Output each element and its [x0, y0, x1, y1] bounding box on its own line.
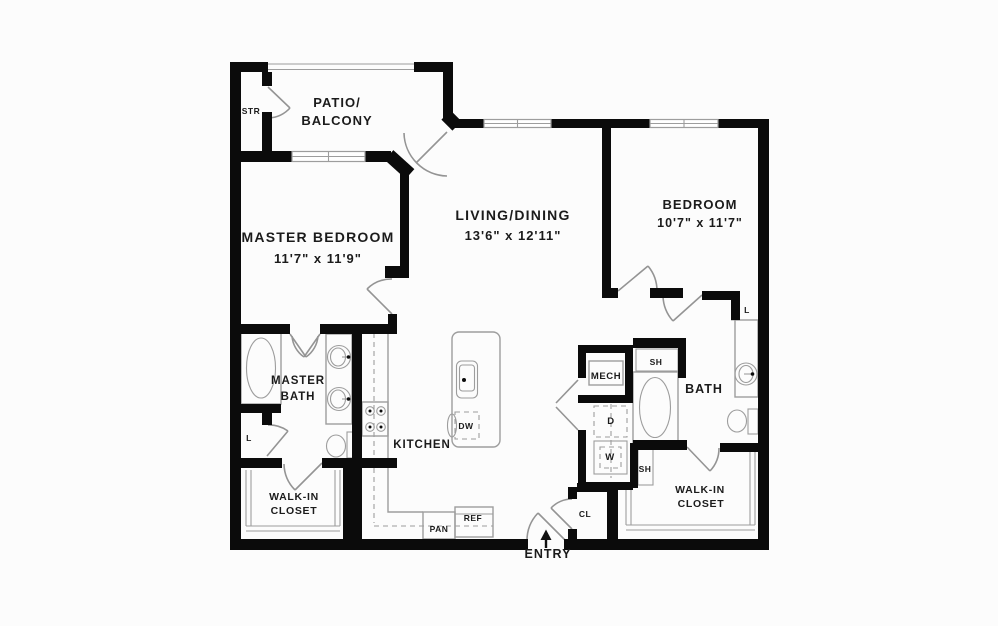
bath-tub	[633, 372, 678, 443]
master-bath-label-line2: BATH	[281, 391, 316, 403]
linen-master-label: L	[246, 433, 252, 443]
window-master-bedroom	[292, 152, 365, 162]
bath-vanity	[731, 320, 758, 397]
bath-toilet	[728, 409, 759, 434]
floor-plan-svg: PATIO/ BALCONY STR MASTER BEDROOM 11'7" …	[0, 0, 998, 626]
patio-railing	[268, 64, 414, 70]
bedroom-dims: 10'7" x 11'7"	[657, 216, 743, 230]
floor-plan: PATIO/ BALCONY STR MASTER BEDROOM 11'7" …	[0, 0, 998, 626]
master-bedroom-dims: 11'7" x 11'9"	[274, 251, 362, 266]
coat-closet-label: CL	[579, 509, 591, 519]
bath-door	[663, 295, 702, 321]
living-dining-label: LIVING/DINING	[455, 207, 570, 223]
shelf-lower-label: SH	[639, 464, 652, 474]
master-bath-tub	[241, 333, 281, 404]
window-living	[484, 120, 551, 128]
interior-walls	[241, 127, 758, 540]
walk-in-closet-right-line2: CLOSET	[678, 498, 725, 510]
master-bedroom-door	[367, 279, 392, 314]
bath-label: BATH	[685, 382, 723, 396]
walk-in-closet-left-line1: WALK-IN	[269, 491, 319, 503]
bedroom-label: BEDROOM	[663, 197, 738, 212]
dishwasher-label: DW	[458, 421, 474, 431]
refrigerator-label: REF	[464, 513, 483, 523]
entry-arrow-icon	[541, 530, 552, 549]
master-bath-vanity	[326, 334, 352, 424]
patio-label-line2: BALCONY	[301, 113, 372, 128]
window-bedroom	[650, 120, 718, 128]
kitchen-label: KITCHEN	[393, 439, 450, 451]
entry-label: ENTRY	[525, 547, 572, 561]
storage-label: STR	[242, 106, 261, 116]
kitchen-island	[448, 332, 501, 447]
bedroom-door	[618, 266, 657, 291]
walls	[230, 62, 769, 550]
walk-in-closet-left-door	[284, 463, 322, 490]
pantry-label: PAN	[430, 524, 449, 534]
laundry-doors	[556, 380, 578, 430]
master-bath-double-door	[290, 334, 320, 357]
fixtures	[241, 64, 758, 539]
shelf-upper-label: SH	[650, 357, 663, 367]
master-bedroom-label: MASTER BEDROOM	[242, 229, 395, 245]
living-dining-dims: 13'6" x 12'11"	[465, 228, 562, 243]
linen-master-door	[267, 425, 288, 456]
linen-bath-label: L	[744, 305, 750, 315]
exterior-walls	[230, 62, 769, 550]
coat-closet-door	[551, 499, 572, 529]
labels: PATIO/ BALCONY STR MASTER BEDROOM 11'7" …	[242, 95, 750, 561]
walk-in-closet-right-line1: WALK-IN	[675, 484, 725, 496]
washer-label: W	[605, 452, 615, 463]
walk-in-closet-left-line2: CLOSET	[271, 505, 318, 517]
master-bath-label-line1: MASTER	[271, 375, 325, 387]
dryer-label: D	[607, 416, 614, 427]
stove	[362, 402, 388, 436]
patio-label-line1: PATIO/	[313, 95, 360, 110]
walk-in-closet-right-door	[687, 447, 719, 471]
mechanical-label: MECH	[591, 371, 621, 382]
